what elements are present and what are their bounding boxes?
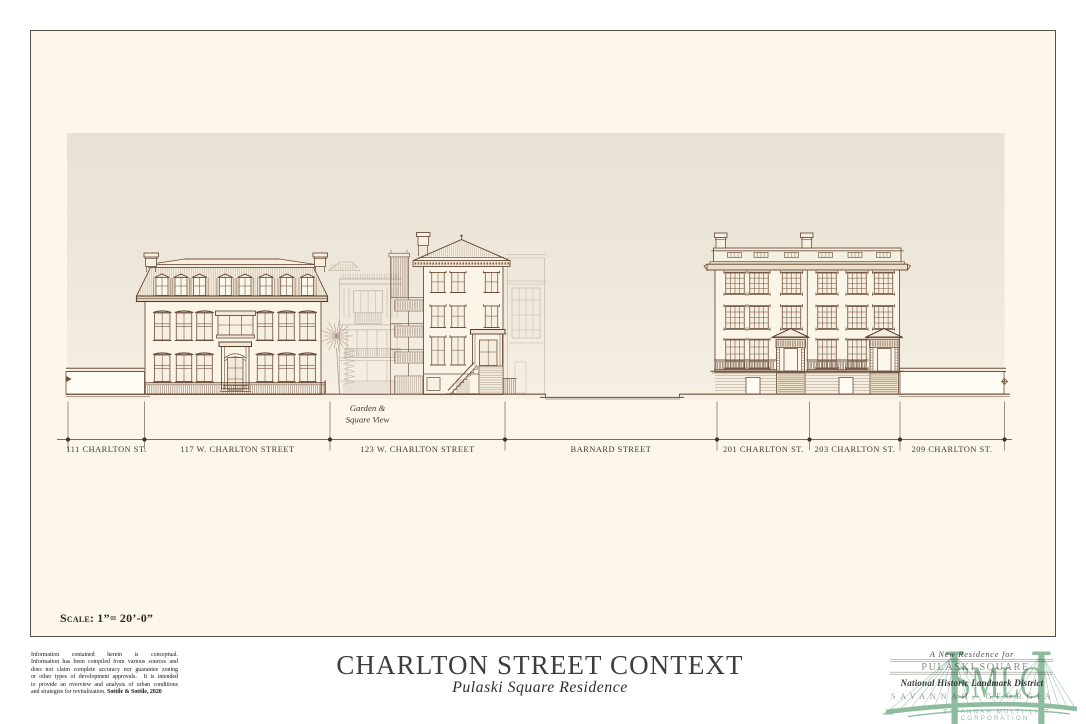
svg-text:201 CHARLTON ST.: 201 CHARLTON ST. — [723, 445, 804, 454]
svg-text:SMLC: SMLC — [953, 657, 1041, 708]
svg-text:123 W. CHARLTON STREET: 123 W. CHARLTON STREET — [360, 445, 474, 454]
svg-text:203 CHARLTON ST.: 203 CHARLTON ST. — [815, 445, 896, 454]
svg-text:Square View: Square View — [346, 415, 390, 425]
svg-text:117 W. CHARLTON STREET: 117 W. CHARLTON STREET — [180, 445, 294, 454]
svg-text:Garden &: Garden & — [350, 403, 386, 413]
svg-text:209 CHARLTON ST.: 209 CHARLTON ST. — [912, 445, 993, 454]
svg-text:CORPORATION: CORPORATION — [961, 715, 1030, 722]
svg-text:BARNARD STREET: BARNARD STREET — [571, 445, 652, 454]
svg-text:111 CHARLTON ST.: 111 CHARLTON ST. — [66, 445, 146, 454]
